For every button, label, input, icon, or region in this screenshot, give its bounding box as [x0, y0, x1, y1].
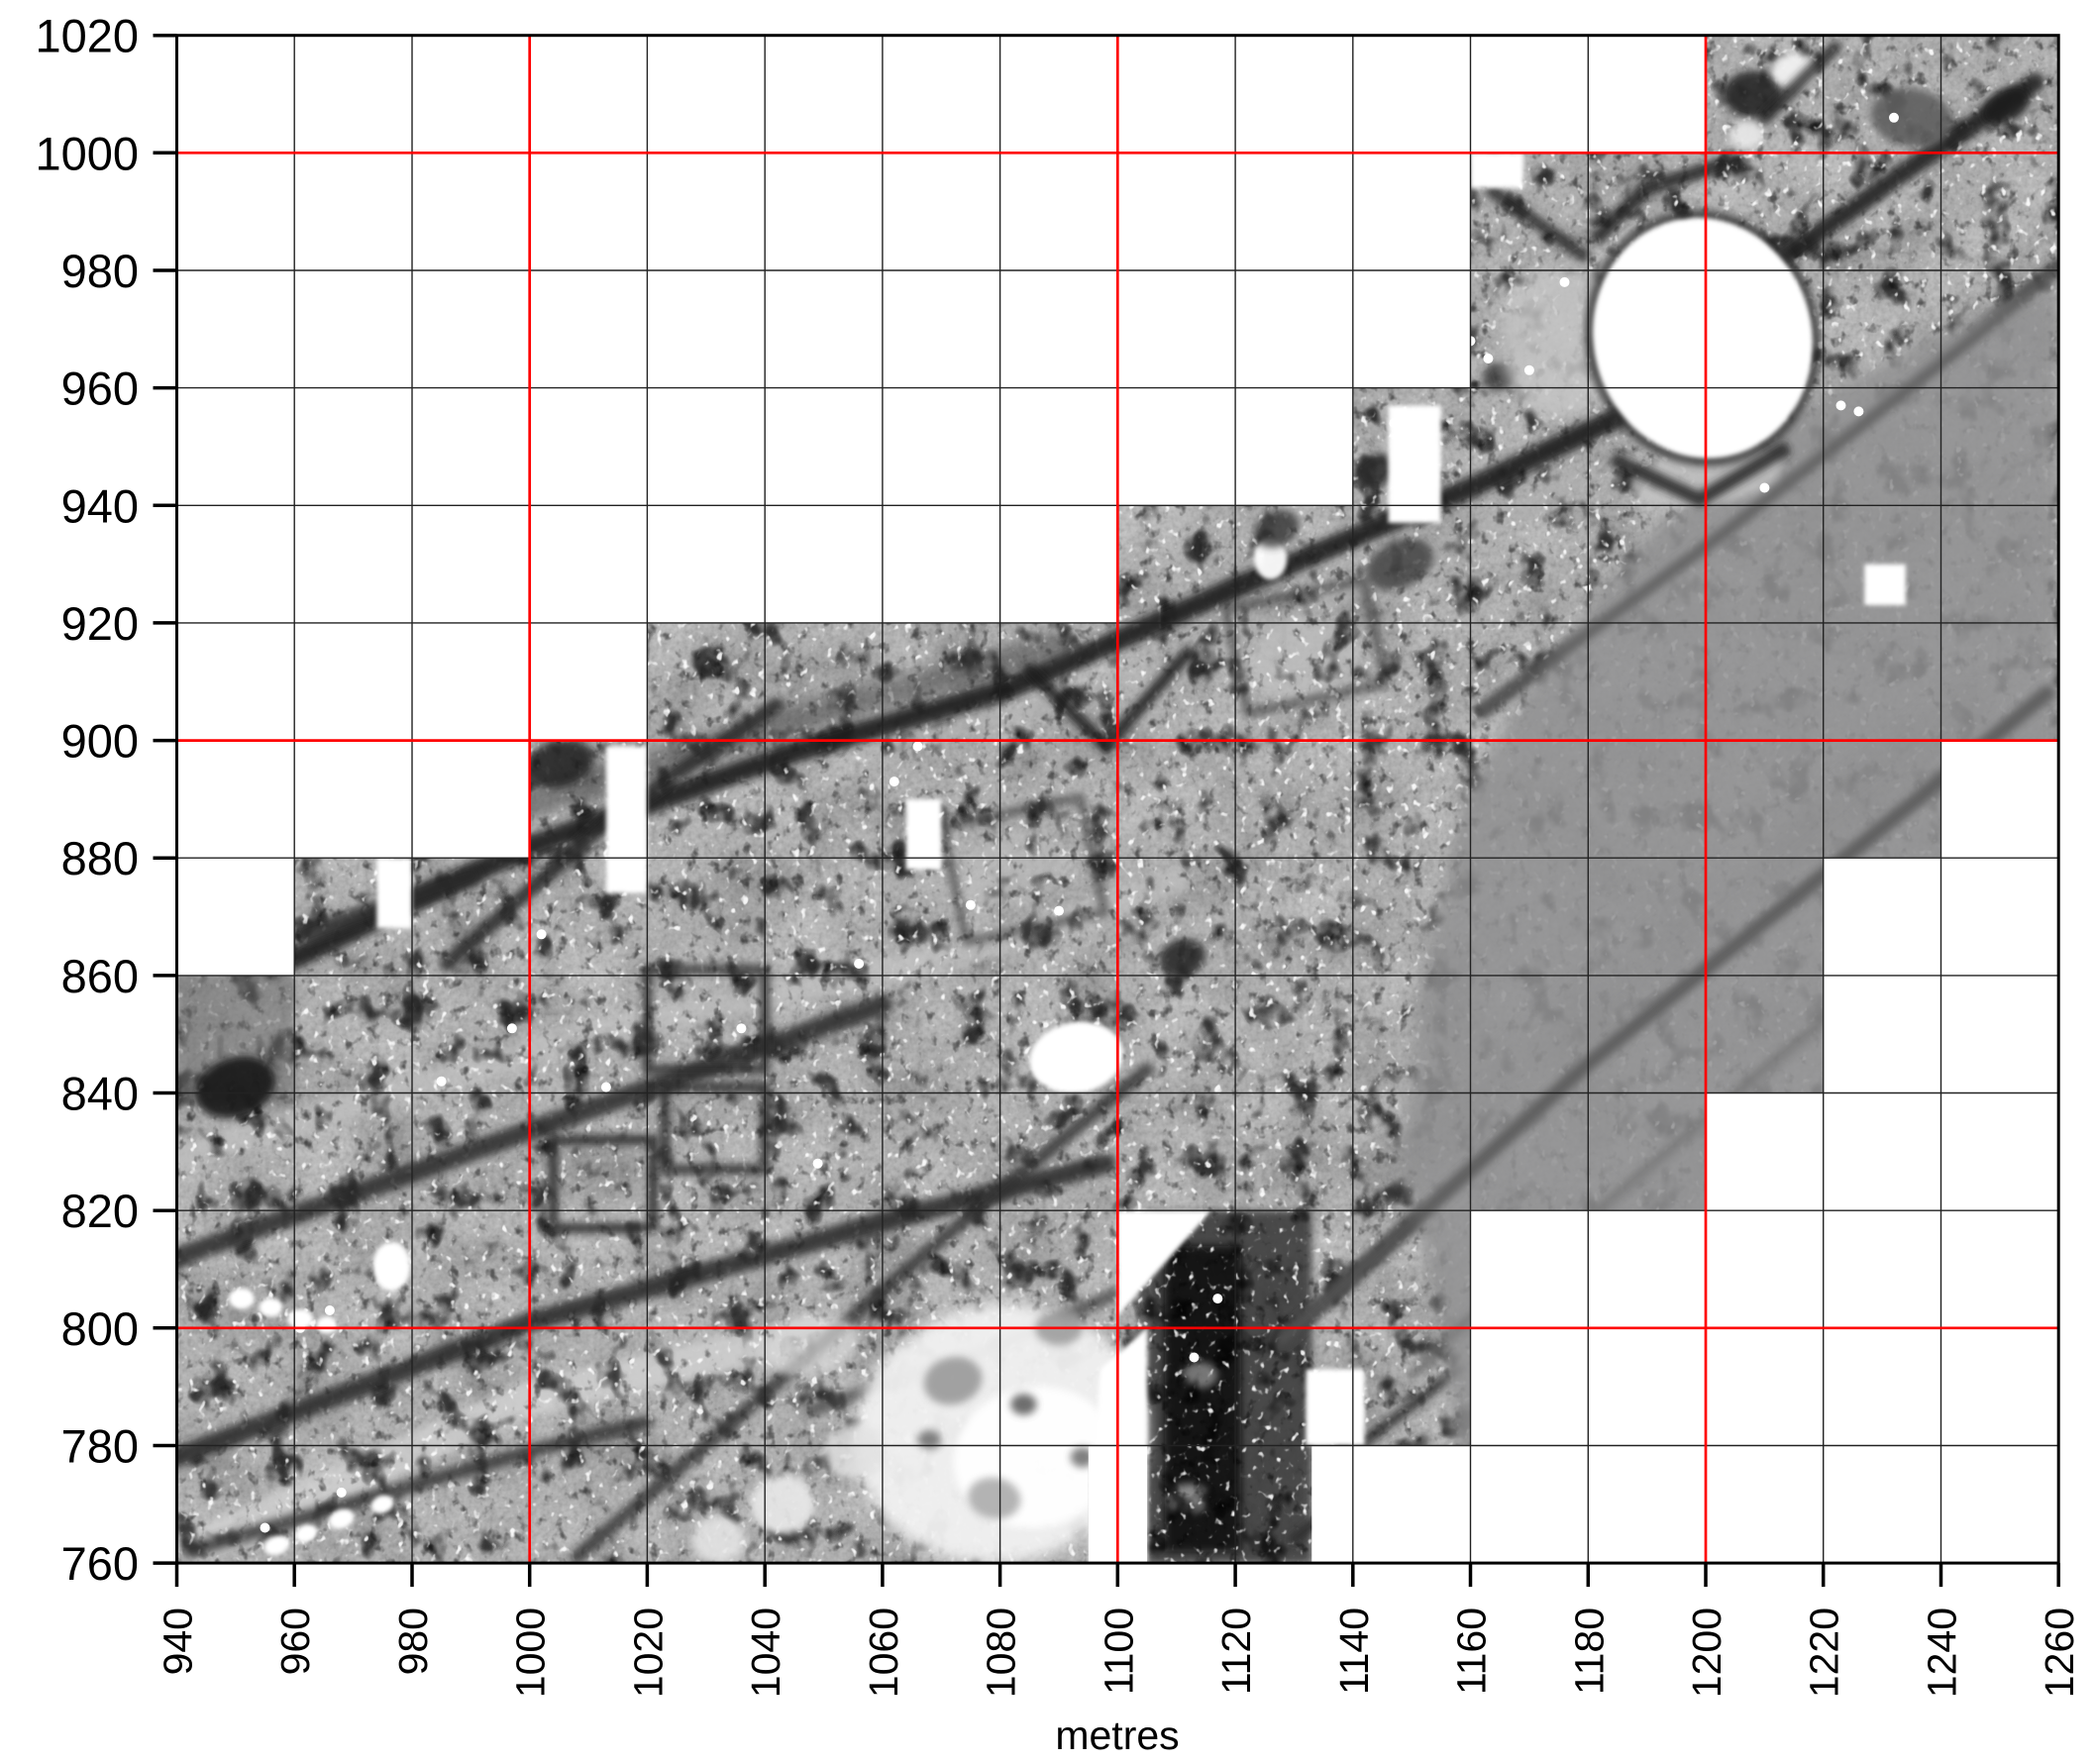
svg-text:1180: 1180: [1566, 1608, 1612, 1695]
svg-text:780: 780: [61, 1420, 139, 1473]
svg-text:820: 820: [61, 1185, 139, 1237]
svg-text:1200: 1200: [1684, 1608, 1729, 1698]
svg-text:860: 860: [61, 950, 139, 1002]
svg-text:1000: 1000: [35, 127, 139, 179]
svg-text:1020: 1020: [625, 1608, 671, 1698]
svg-text:1160: 1160: [1449, 1608, 1495, 1695]
svg-text:1100: 1100: [1096, 1608, 1141, 1695]
svg-text:960: 960: [272, 1608, 318, 1675]
svg-text:metres: metres: [1055, 1712, 1179, 1758]
svg-text:760: 760: [61, 1537, 139, 1590]
svg-text:940: 940: [156, 1608, 201, 1675]
svg-text:920: 920: [61, 597, 139, 650]
svg-text:1080: 1080: [979, 1608, 1024, 1698]
svg-text:960: 960: [61, 363, 139, 415]
svg-text:1060: 1060: [861, 1608, 906, 1698]
svg-text:1020: 1020: [35, 10, 139, 62]
svg-text:1240: 1240: [1920, 1608, 1965, 1698]
svg-text:1000: 1000: [508, 1608, 554, 1698]
svg-text:900: 900: [61, 715, 139, 768]
svg-text:1120: 1120: [1213, 1608, 1259, 1695]
svg-text:1040: 1040: [743, 1608, 788, 1698]
svg-text:1260: 1260: [2037, 1608, 2082, 1698]
svg-text:940: 940: [61, 479, 139, 532]
svg-text:1220: 1220: [1802, 1608, 1847, 1698]
svg-text:980: 980: [390, 1608, 436, 1675]
svg-text:840: 840: [61, 1068, 139, 1120]
svg-text:880: 880: [61, 832, 139, 884]
svg-text:800: 800: [61, 1302, 139, 1355]
svg-text:980: 980: [61, 245, 139, 297]
svg-text:1140: 1140: [1331, 1608, 1377, 1695]
